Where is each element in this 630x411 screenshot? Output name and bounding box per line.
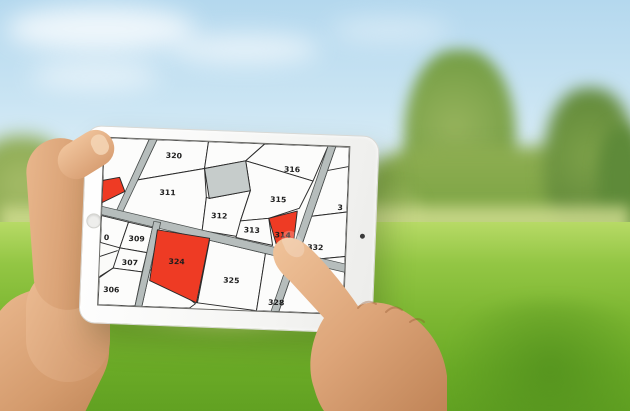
parcel-315-label: 315	[270, 195, 287, 204]
pointing-finger	[273, 238, 447, 411]
parcel-312-label: 312	[211, 211, 228, 220]
parcel-306-label: 306	[103, 285, 120, 294]
cloud	[330, 18, 450, 42]
right-hand	[262, 226, 447, 411]
parcel-311-label: 311	[159, 188, 176, 197]
thumb-nail	[88, 132, 112, 158]
parcel-320-label: 320	[166, 151, 183, 160]
parcel-309-label: 309	[128, 234, 145, 243]
parcel-partial-right-label: 3	[337, 203, 343, 212]
scene: 320 316 311 315 312 313 314 3 332 324 32…	[0, 0, 630, 411]
parcel-partial-left-label: 0	[104, 233, 110, 242]
cloud	[30, 62, 160, 90]
cloud	[6, 6, 196, 52]
cloud	[170, 34, 320, 64]
parcel-313-label: 313	[244, 225, 261, 234]
parcel-307-label: 307	[122, 258, 139, 267]
parcel-325-label: 325	[223, 276, 240, 285]
parcel-324-label: 324	[168, 257, 185, 266]
parcel-316-label: 316	[284, 165, 301, 174]
